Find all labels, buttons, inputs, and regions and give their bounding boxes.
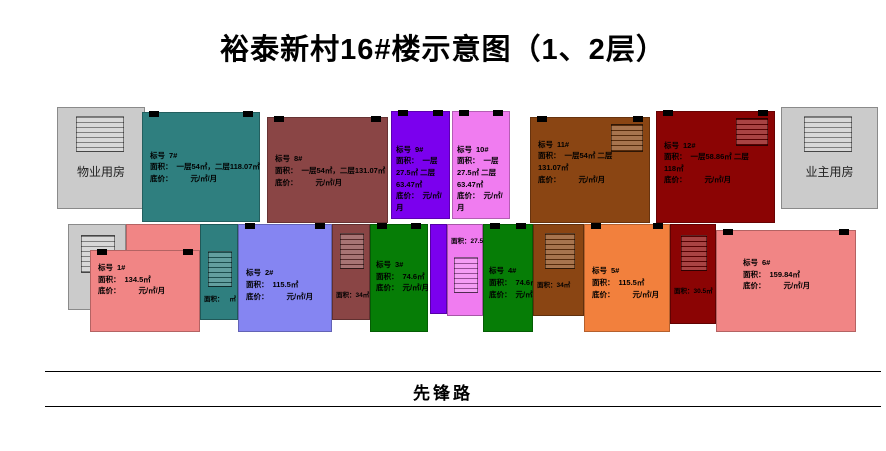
room-label: 物业用房: [58, 163, 144, 180]
unit-price: 元/㎡/月: [403, 283, 430, 292]
mianji-label: 面积：: [396, 156, 419, 165]
unit-label: 标号7# 面积：一层54㎡，二层118.07㎡ 底价：元/㎡/月: [150, 150, 260, 185]
mianji-label: 面积：: [376, 272, 399, 281]
mianji-label: 面积：: [592, 278, 615, 287]
unit-price: 元/㎡/月: [287, 292, 314, 301]
unit-price: 元/㎡/月: [316, 178, 343, 187]
stair-unit-brown[interactable]: 面积：34㎡: [533, 224, 584, 316]
mianji-label: 面积：: [457, 156, 480, 165]
property-management-room[interactable]: 物业用房: [57, 107, 145, 209]
dijia-label: 底价：: [664, 175, 687, 184]
unit-10[interactable]: 标号10# 面积：一层27.5㎡ 二层63.47㎡ 底价：元/㎡/月: [452, 111, 510, 219]
mianji-label: 面积：: [538, 151, 561, 160]
unit-area: 134.5㎡: [125, 275, 151, 284]
unit-label: 标号5# 面积：115.5㎡ 底价：元/㎡/月: [592, 265, 659, 300]
biaohao-label: 标号: [457, 145, 472, 154]
dijia-label: 底价：: [275, 178, 298, 187]
unit-label: 标号6# 面积：159.84㎡ 底价：元/㎡/月: [743, 257, 810, 292]
stair-unit-darkred[interactable]: 面积：30.5㎡: [670, 224, 716, 324]
unit-area: 159.84㎡: [770, 270, 800, 279]
unit-12[interactable]: 标号12# 面积：一层58.86㎡ 二层118㎡ 底价：元/㎡/月: [656, 111, 775, 223]
mianji-label: 面积：: [489, 278, 512, 287]
road-name: 先锋路: [0, 379, 886, 404]
dijia-label: 底价：: [246, 292, 269, 301]
unit-price: 元/㎡/月: [633, 290, 660, 299]
unit-price: 元/㎡/月: [191, 174, 218, 183]
unit-price: 元/㎡/月: [705, 175, 732, 184]
stair-unit-teal[interactable]: 面积：㎡: [200, 224, 238, 320]
unit-5[interactable]: 标号5# 面积：115.5㎡ 底价：元/㎡/月: [584, 224, 670, 332]
mianji-label: 面积：: [743, 270, 766, 279]
mianji-label: 面积：: [275, 166, 298, 175]
dijia-label: 底价：: [396, 191, 419, 200]
unit-9[interactable]: 标号9# 面积：一层27.5㎡ 二层63.47㎡ 底价：元/㎡/月: [391, 111, 450, 219]
biaohao-label: 标号: [664, 141, 679, 150]
biaohao-label: 标号: [246, 268, 261, 277]
stairs-icon: [545, 233, 575, 269]
strip-label: 面积：34㎡: [336, 289, 369, 299]
unit-number: 3#: [395, 260, 403, 269]
stair-unit-violet[interactable]: [430, 224, 447, 314]
unit-8[interactable]: 标号8# 面积：一层54㎡，二层131.07㎡ 底价：元/㎡/月: [267, 117, 388, 223]
unit-label: 标号1# 面积：134.5㎡ 底价：元/㎡/月: [98, 262, 165, 297]
unit-4[interactable]: 标号4# 面积：74.6㎡ 底价：元/㎡/月: [483, 224, 533, 332]
unit-label: 标号9# 面积：一层27.5㎡ 二层63.47㎡ 底价：元/㎡/月: [396, 144, 449, 214]
unit-number: 1#: [117, 263, 125, 272]
stair-unit-pink[interactable]: 面积：27.5㎡: [447, 224, 483, 316]
unit-price: 元/㎡/月: [579, 175, 606, 184]
dijia-label: 底价：: [150, 174, 173, 183]
road-edge-top: [45, 371, 881, 372]
unit-area: 115.5㎡: [273, 280, 299, 289]
unit-label: 标号2# 面积：115.5㎡ 底价：元/㎡/月: [246, 267, 313, 302]
unit-number: 4#: [508, 266, 516, 275]
page-title: 裕泰新村16#楼示意图（1、2层）: [0, 26, 886, 68]
unit-number: 2#: [265, 268, 273, 277]
unit-price: 元/㎡/月: [784, 281, 811, 290]
strip-label: 面积：30.5㎡: [674, 285, 713, 295]
unit-number: 11#: [557, 140, 569, 149]
unit-area: 一层54㎡，二层118.07㎡: [177, 162, 260, 171]
unit-number: 8#: [294, 154, 302, 163]
unit-number: 12#: [683, 141, 696, 150]
biaohao-label: 标号: [538, 140, 553, 149]
mianji-label: 面积：: [246, 280, 269, 289]
unit-7[interactable]: 标号7# 面积：一层54㎡，二层118.07㎡ 底价：元/㎡/月: [142, 112, 260, 222]
biaohao-label: 标号: [376, 260, 391, 269]
unit-label: 标号8# 面积：一层54㎡，二层131.07㎡ 底价：元/㎡/月: [275, 153, 385, 188]
dijia-label: 底价：: [98, 286, 121, 295]
unit-2[interactable]: 标号2# 面积：115.5㎡ 底价：元/㎡/月: [238, 224, 332, 332]
stairs-icon: [208, 251, 232, 287]
unit-1[interactable]: 标号1# 面积：134.5㎡ 底价：元/㎡/月: [90, 250, 200, 332]
biaohao-label: 标号: [592, 266, 607, 275]
stairs-icon: [454, 257, 478, 293]
stair-unit-maroon[interactable]: 面积：34㎡: [332, 224, 370, 320]
unit-label: 标号3# 面积：74.6㎡ 底价：元/㎡/月: [376, 259, 429, 294]
stairs-icon: [340, 233, 364, 269]
unit-number: 6#: [762, 258, 770, 267]
unit-area: 115.5㎡: [619, 278, 645, 287]
unit-number: 5#: [611, 266, 619, 275]
mianji-label: 面积：: [664, 152, 687, 161]
dijia-label: 底价：: [457, 191, 480, 200]
unit-label: 标号12# 面积：一层58.86㎡ 二层118㎡ 底价：元/㎡/月: [664, 140, 756, 187]
unit-number: 9#: [415, 145, 423, 154]
biaohao-label: 标号: [743, 258, 758, 267]
room-label: 业主用房: [782, 163, 877, 180]
biaohao-label: 标号: [489, 266, 504, 275]
unit-number: 7#: [169, 151, 177, 160]
strip-label: 面积：㎡: [204, 293, 236, 303]
stairs-icon: [804, 116, 852, 152]
dijia-label: 底价：: [376, 283, 399, 292]
biaohao-label: 标号: [98, 263, 113, 272]
biaohao-label: 标号: [396, 145, 411, 154]
unit-price: 元/㎡/月: [139, 286, 166, 295]
road-edge-bottom: [45, 406, 881, 407]
dijia-label: 底价：: [743, 281, 766, 290]
mianji-label: 面积：: [150, 162, 173, 171]
owner-room[interactable]: 业主用房: [781, 107, 878, 209]
dijia-label: 底价：: [592, 290, 615, 299]
biaohao-label: 标号: [275, 154, 290, 163]
unit-label: 标号11# 面积：一层54㎡ 二层131.07㎡ 底价：元/㎡/月: [538, 139, 624, 186]
stairs-icon: [76, 116, 124, 152]
unit-11[interactable]: 标号11# 面积：一层54㎡ 二层131.07㎡ 底价：元/㎡/月: [530, 117, 650, 223]
unit-area: 74.6㎡: [403, 272, 425, 281]
unit-3[interactable]: 标号3# 面积：74.6㎡ 底价：元/㎡/月: [370, 224, 428, 332]
dijia-label: 底价：: [538, 175, 561, 184]
stairs-icon: [681, 235, 707, 271]
unit-area: 一层54㎡，二层131.07㎡: [302, 166, 386, 175]
unit-label: 标号10# 面积：一层27.5㎡ 二层63.47㎡ 底价：元/㎡/月: [457, 144, 509, 214]
biaohao-label: 标号: [150, 151, 165, 160]
unit-number: 10#: [476, 145, 489, 154]
strip-label: 面积：34㎡: [537, 279, 570, 289]
unit-6[interactable]: 标号6# 面积：159.84㎡ 底价：元/㎡/月: [716, 230, 856, 332]
dijia-label: 底价：: [489, 290, 512, 299]
floorplan-canvas: 裕泰新村16#楼示意图（1、2层） 物业用房 标号7# 面积：一层54㎡，二层1…: [0, 0, 886, 451]
mianji-label: 面积：: [98, 275, 121, 284]
